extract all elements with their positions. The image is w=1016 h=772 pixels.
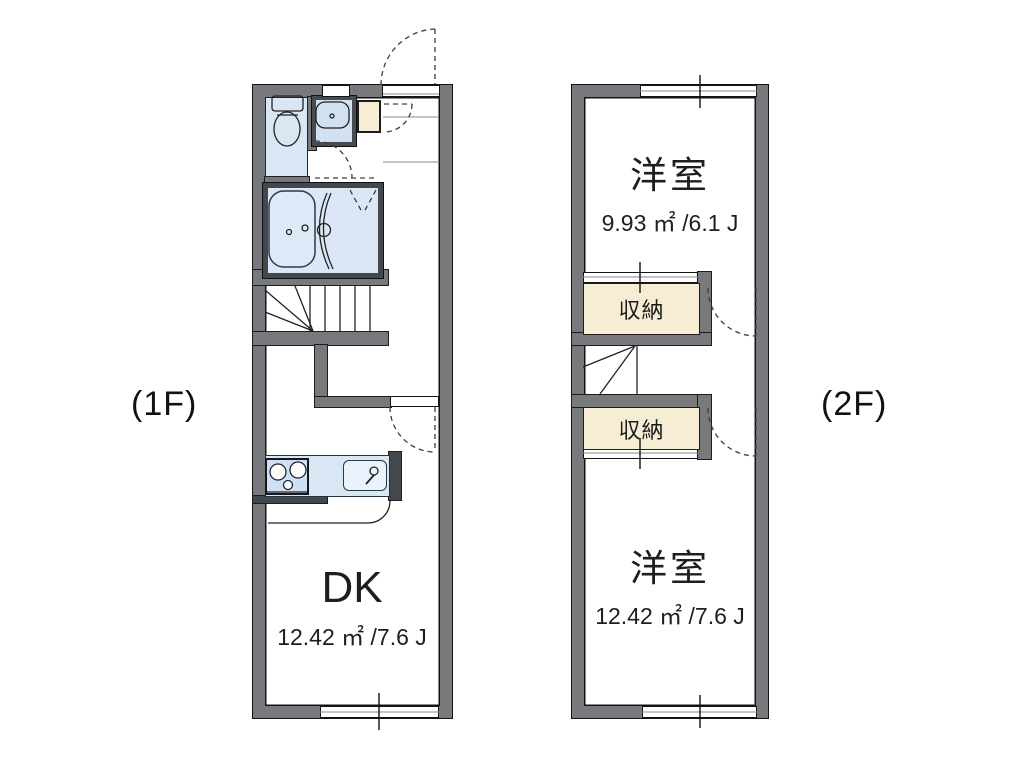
wall-hall-dk [315,397,391,407]
window-bottom-2f [642,706,757,718]
kitchen-end-panel [389,452,401,500]
floor-label-2f: (2F) [821,385,887,424]
closet-upper: 収納 [583,283,700,335]
stove [265,458,309,495]
kitchen-counter-stub [253,496,327,503]
room-label-upper: 洋室 9.93 ㎡ /6.1 J [584,145,756,238]
bathroom-floor [268,188,378,273]
room-name-dk: DK [265,563,439,613]
room-area-upper: 9.93 ㎡ /6.1 J [584,204,756,238]
dk-doorway [390,396,439,407]
closet-upper-label: 収納 [618,293,664,325]
floor-label-1f: (1F) [131,385,197,424]
room-name-upper: 洋室 [584,145,756,199]
room-label-lower: 洋室 12.42 ㎡ /7.6 J [584,538,756,631]
washbasin-unit [312,96,356,146]
closet-lower-label: 収納 [618,413,664,445]
room-area-dk: 12.42 ㎡ /7.6 J [265,618,439,652]
bathroom [263,183,383,278]
washbasin-top [316,100,352,142]
room-area-lower: 12.42 ㎡ /7.6 J [584,597,756,631]
closet-lower: 収納 [583,407,700,450]
shoe-cabinet [357,100,381,133]
kitchen-sink [343,460,387,491]
window-bottom-1f [320,706,439,718]
floorplan-canvas: (1F) (2F) 洗置 [0,0,1016,772]
plan-1f: 洗置 [253,85,452,718]
toilet-room [265,97,308,177]
closet-upper-sliding-door [583,272,698,283]
plan-2f: 収納 収納 [572,85,768,718]
room-label-dk: DK 12.42 ㎡ /7.6 J [265,563,439,652]
entrance-opening [382,85,440,97]
window-top-small [322,85,350,97]
wall-closet-lower-top [572,395,711,407]
wall-stairs-bottom [253,332,388,345]
room-name-lower: 洋室 [584,538,756,592]
window-top-2f [640,85,757,97]
entrance-door-arc [381,29,437,85]
